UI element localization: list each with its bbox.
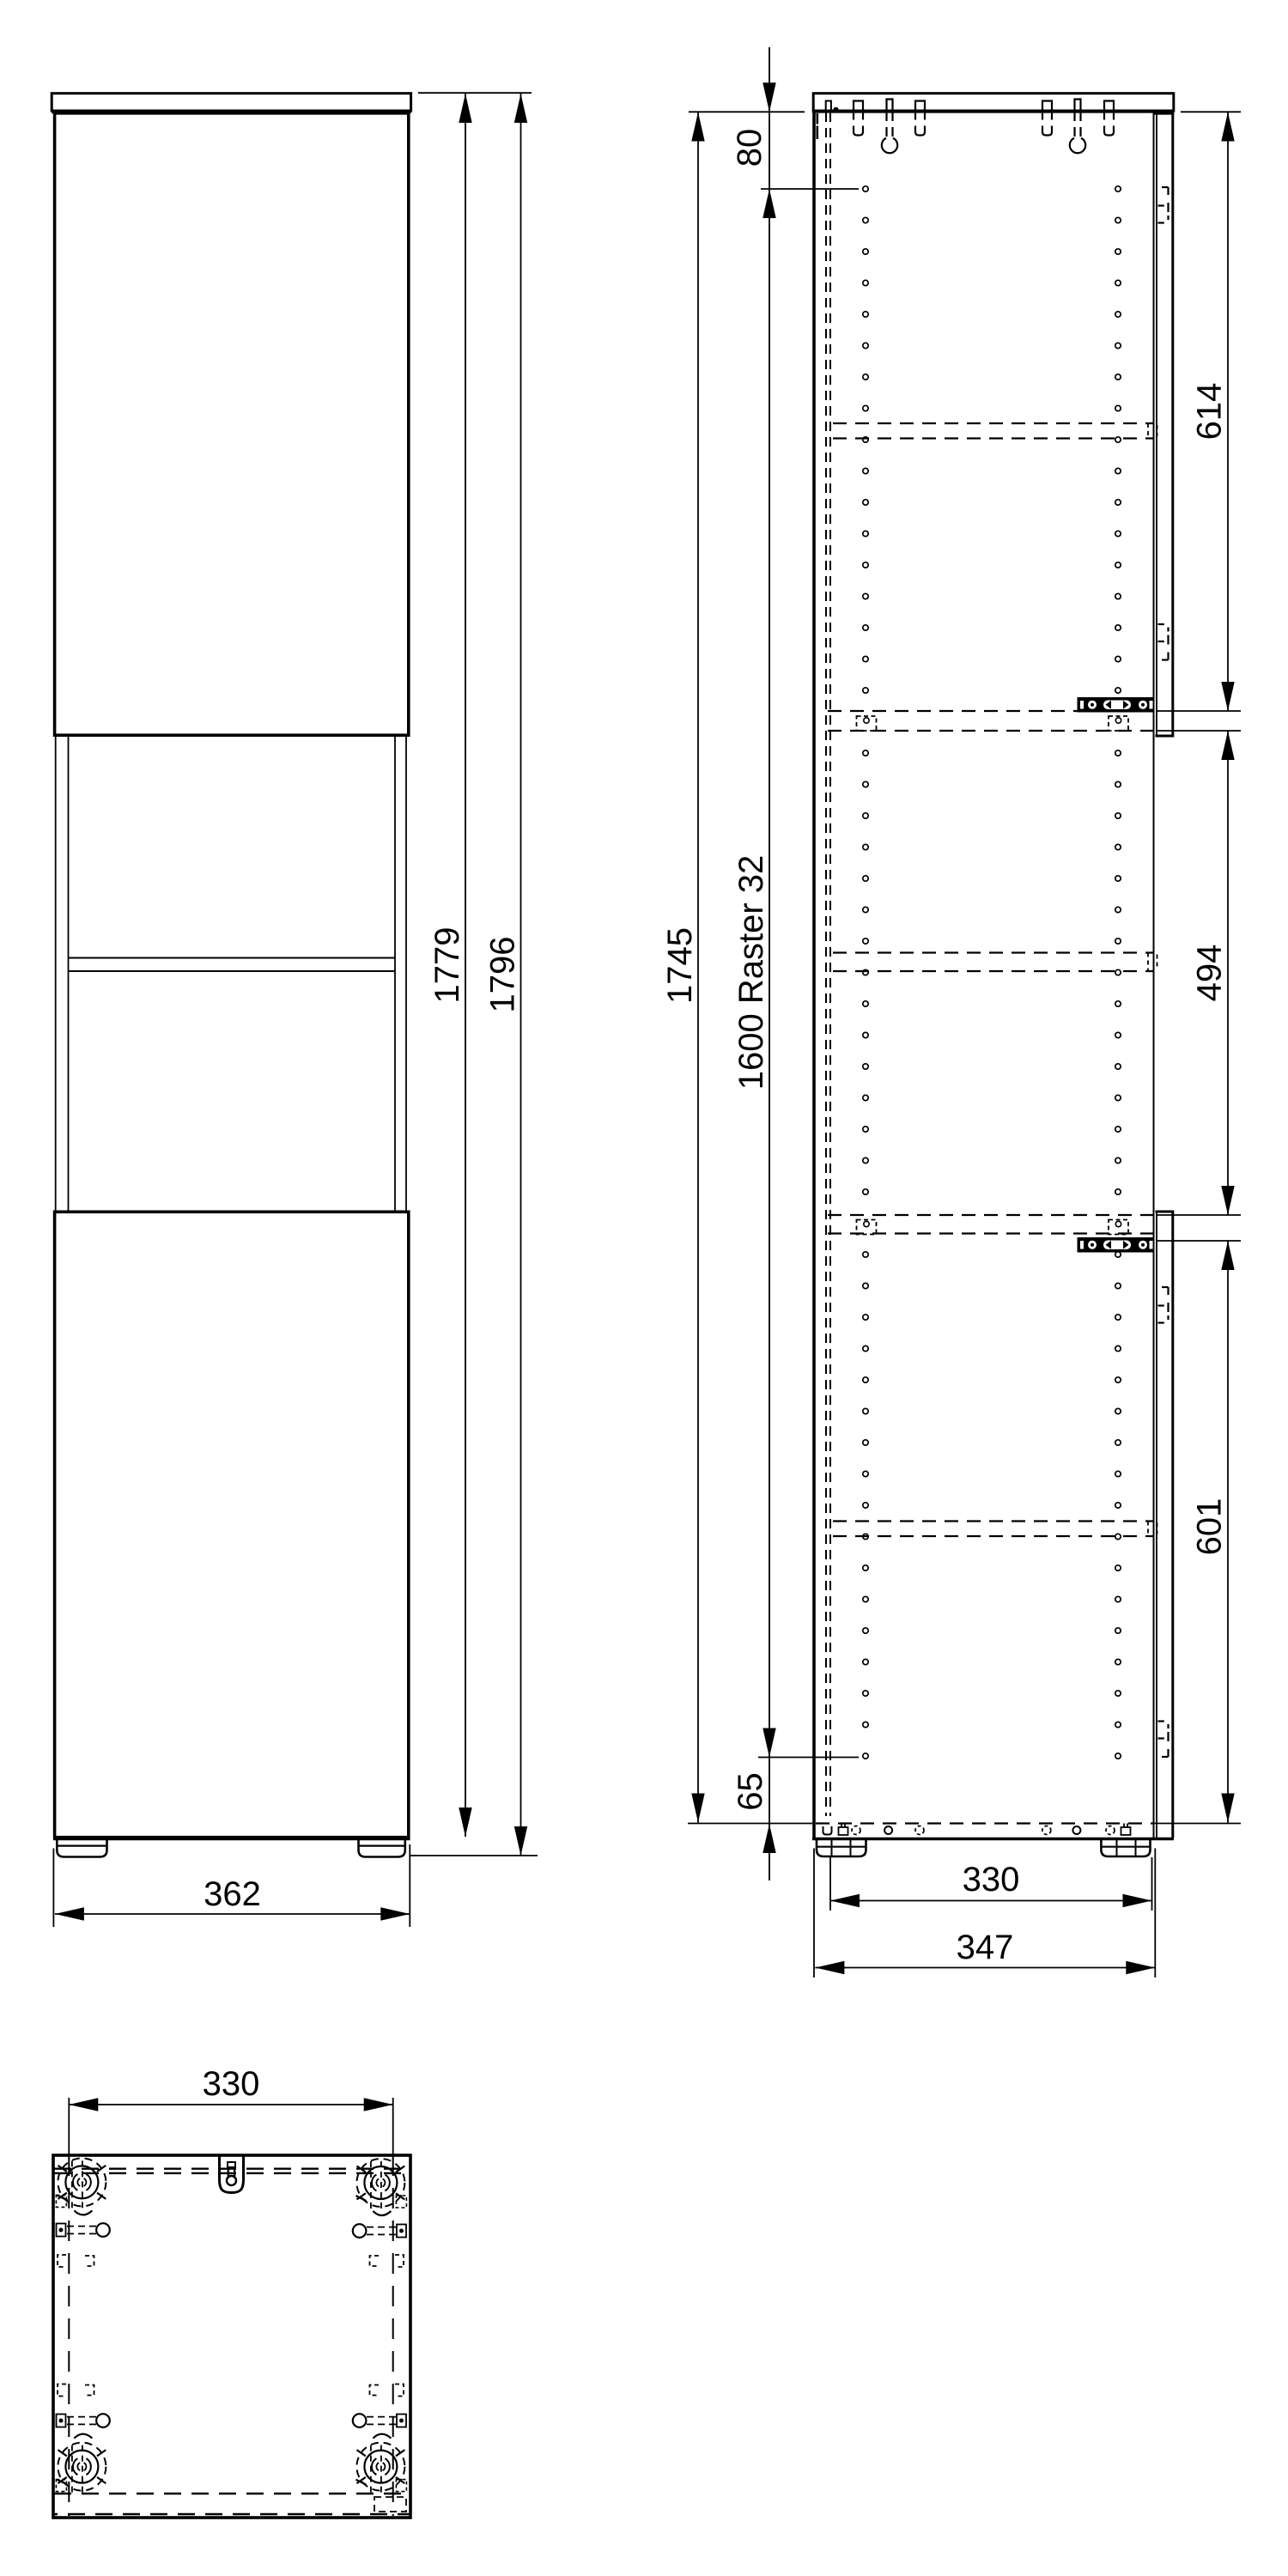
svg-text:1600 Raster 32: 1600 Raster 32	[732, 855, 770, 1091]
svg-text:347: 347	[957, 1929, 1014, 1966]
svg-text:601: 601	[1191, 1498, 1229, 1556]
svg-text:1779: 1779	[428, 927, 466, 1004]
svg-text:330: 330	[963, 1861, 1020, 1899]
svg-text:80: 80	[731, 129, 769, 167]
svg-text:65: 65	[732, 1772, 769, 1811]
svg-text:362: 362	[204, 1875, 261, 1913]
svg-text:614: 614	[1191, 383, 1229, 440]
svg-text:330: 330	[203, 2065, 260, 2103]
svg-text:494: 494	[1191, 945, 1229, 1002]
svg-text:1796: 1796	[484, 937, 522, 1013]
svg-text:1745: 1745	[661, 927, 699, 1004]
